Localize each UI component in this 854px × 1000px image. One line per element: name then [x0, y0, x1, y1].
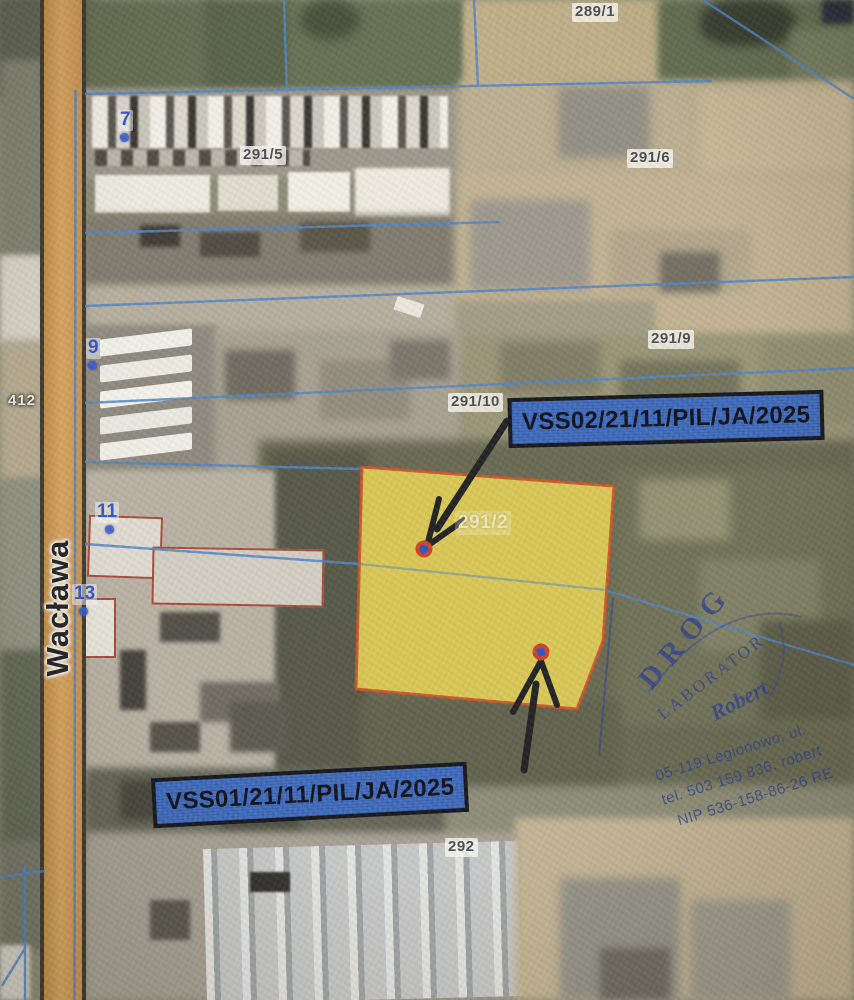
parcel-label-291-5: 291/5 [240, 146, 286, 165]
parcel-label-292: 292 [445, 838, 478, 857]
stamp-bracket [598, 598, 614, 756]
street-name-label: Wacława [40, 540, 76, 677]
address-label-11: 11 [95, 502, 119, 523]
address-label-7: 7 [118, 110, 133, 131]
map-annotations: 289/1 291/5 291/6 291/9 291/10 291/2 292… [0, 0, 854, 1000]
scanned-site-map: 289/1 291/5 291/6 291/9 291/10 291/2 292… [0, 0, 854, 1000]
address-dot-7 [120, 133, 129, 142]
parcel-label-291-10: 291/10 [448, 393, 503, 412]
address-dot-9 [88, 361, 97, 370]
address-dot-11 [105, 525, 114, 534]
address-label-9: 9 [86, 338, 101, 359]
parcel-label-291-2: 291/2 [455, 511, 511, 535]
address-dot-13 [79, 607, 88, 616]
measurement-label-vss02: VSS02/21/11/PIL/JA/2025 [507, 390, 825, 448]
parcel-label-289-1: 289/1 [572, 3, 618, 22]
parcel-label-291-9: 291/9 [648, 330, 694, 349]
address-label-13: 13 [72, 584, 97, 605]
parcel-label-291-6: 291/6 [627, 149, 673, 168]
measurement-label-vss01: VSS01/21/11/PIL/JA/2025 [151, 762, 470, 828]
road-number-label: 412 [8, 392, 36, 409]
